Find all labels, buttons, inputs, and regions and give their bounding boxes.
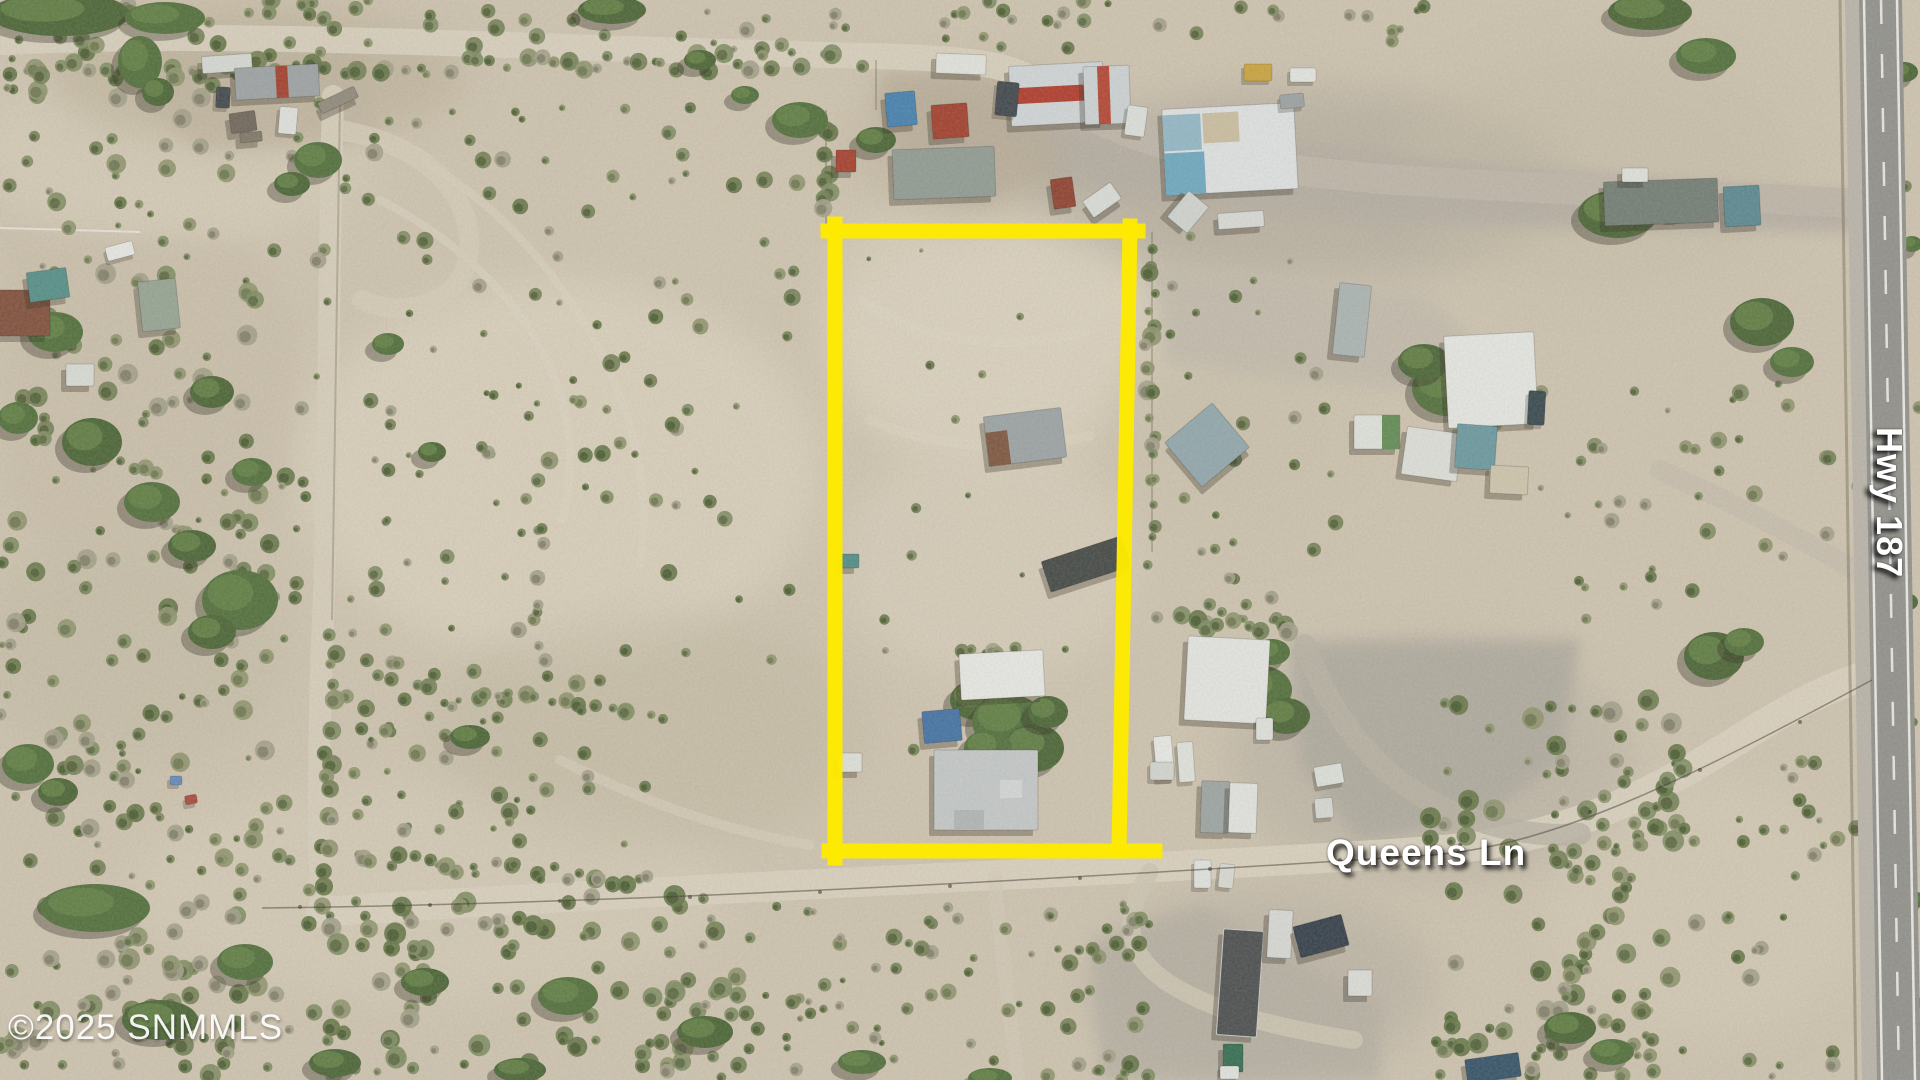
street-label-queens-ln: Queens Ln <box>1326 834 1526 871</box>
aerial-photo <box>0 0 1920 1080</box>
photo-grain-light <box>0 0 1920 1080</box>
aerial-photo-stage: Queens Ln Hwy 187 ©2025 SNMMLS <box>0 0 1920 1080</box>
highway-label-hwy-187: Hwy 187 <box>1871 427 1907 578</box>
copyright-watermark: ©2025 SNMMLS <box>8 1010 283 1045</box>
